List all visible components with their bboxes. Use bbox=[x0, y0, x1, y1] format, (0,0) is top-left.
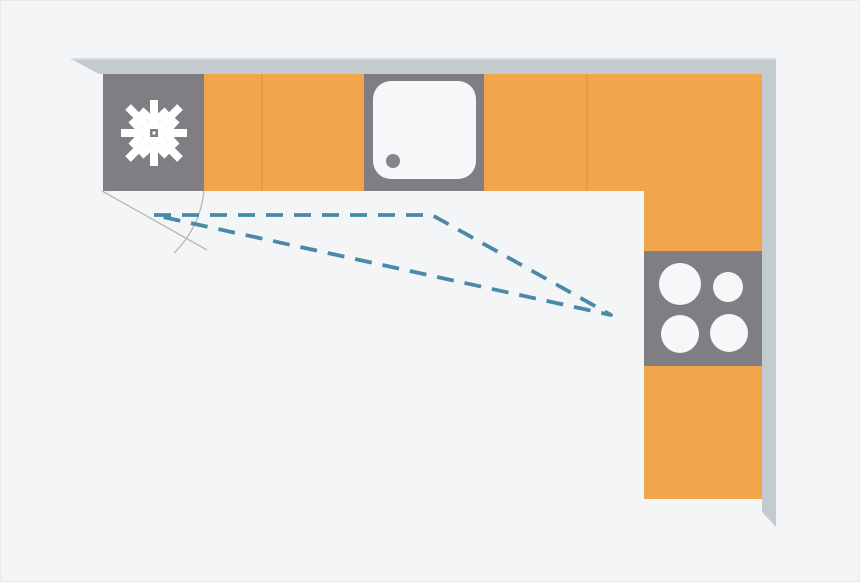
work-triangle-path bbox=[154, 215, 611, 315]
work-triangle-layer bbox=[1, 1, 860, 582]
kitchen-plan-diagram bbox=[0, 0, 860, 582]
